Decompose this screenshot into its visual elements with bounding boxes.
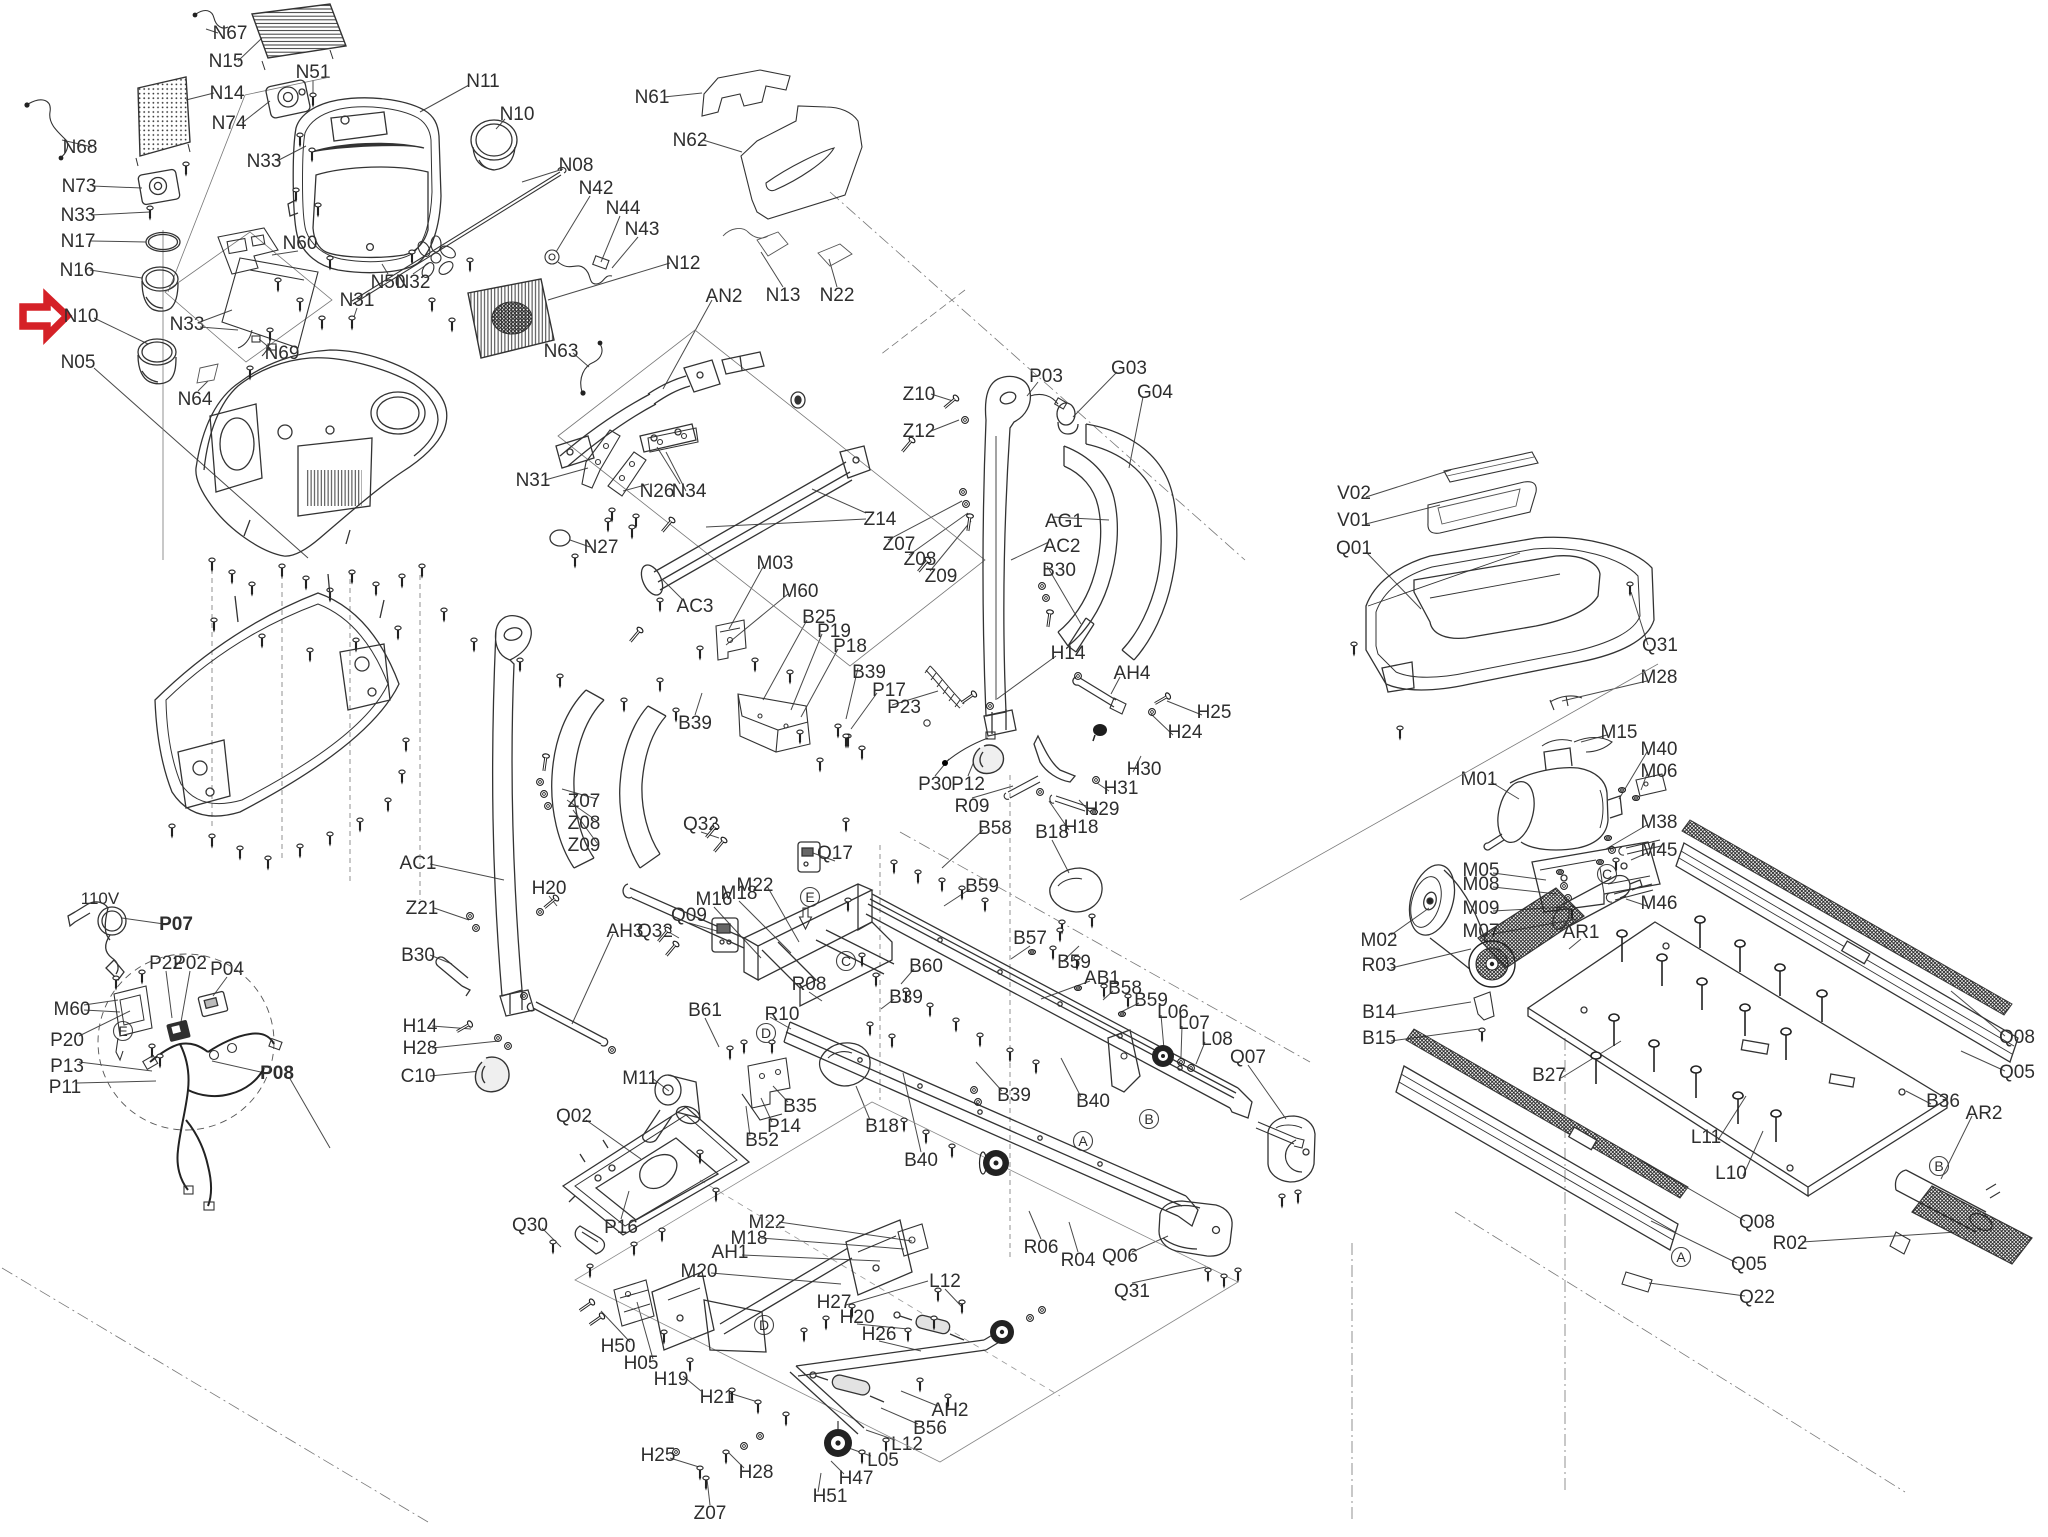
svg-text:Q30: Q30: [512, 1215, 548, 1236]
svg-text:Q05: Q05: [1731, 1254, 1767, 1275]
svg-text:B40: B40: [904, 1150, 938, 1171]
svg-text:AG1: AG1: [1045, 511, 1083, 532]
svg-text:R09: R09: [955, 796, 990, 817]
svg-text:B35: B35: [783, 1096, 817, 1117]
svg-text:B14: B14: [1362, 1002, 1396, 1023]
svg-text:B57: B57: [1013, 928, 1047, 949]
svg-text:AH4: AH4: [1114, 663, 1151, 684]
svg-text:AR2: AR2: [1966, 1103, 2003, 1124]
svg-text:B60: B60: [909, 956, 943, 977]
svg-text:N10: N10: [64, 306, 99, 327]
svg-text:Z12: Z12: [903, 421, 936, 442]
svg-text:N67: N67: [213, 23, 248, 44]
svg-text:H26: H26: [862, 1324, 897, 1345]
svg-text:P11: P11: [49, 1077, 81, 1098]
svg-text:N63: N63: [544, 341, 579, 362]
svg-text:N27: N27: [584, 537, 619, 558]
svg-text:B58: B58: [978, 818, 1012, 839]
svg-text:P02: P02: [173, 953, 207, 974]
svg-text:Z21: Z21: [406, 898, 439, 919]
svg-text:Z07: Z07: [694, 1503, 727, 1524]
svg-text:N61: N61: [635, 87, 670, 108]
svg-text:H51: H51: [813, 1486, 848, 1507]
svg-text:Q17: Q17: [817, 843, 853, 864]
svg-text:H30: H30: [1127, 759, 1162, 780]
svg-text:Q31: Q31: [1642, 635, 1678, 656]
svg-text:E: E: [805, 889, 814, 905]
svg-text:N31: N31: [340, 290, 375, 311]
svg-text:V01: V01: [1337, 510, 1371, 531]
svg-text:H28: H28: [739, 1462, 774, 1483]
svg-text:Z10: Z10: [903, 384, 936, 405]
svg-text:N22: N22: [820, 285, 855, 306]
svg-text:Q05: Q05: [1999, 1062, 2035, 1083]
svg-text:N74: N74: [212, 113, 247, 134]
svg-text:V02: V02: [1337, 483, 1371, 504]
svg-text:H24: H24: [1168, 722, 1203, 743]
svg-text:N31: N31: [516, 470, 551, 491]
svg-text:R06: R06: [1024, 1237, 1059, 1258]
svg-text:Z07: Z07: [568, 791, 601, 812]
svg-text:P07: P07: [159, 914, 193, 935]
svg-text:Z08: Z08: [568, 813, 601, 834]
svg-text:H20: H20: [532, 878, 567, 899]
svg-text:N11: N11: [466, 71, 499, 92]
svg-text:H14: H14: [403, 1016, 438, 1037]
svg-text:P13: P13: [50, 1056, 84, 1077]
svg-text:H19: H19: [654, 1369, 689, 1390]
svg-text:B30: B30: [1042, 560, 1076, 581]
svg-text:G03: G03: [1111, 358, 1147, 379]
svg-text:N34: N34: [672, 481, 707, 502]
svg-text:C10: C10: [401, 1066, 436, 1087]
svg-text:B39: B39: [997, 1085, 1031, 1106]
svg-text:H25: H25: [641, 1445, 676, 1466]
svg-text:N05: N05: [61, 352, 96, 373]
svg-text:N64: N64: [178, 389, 213, 410]
svg-text:N73: N73: [62, 176, 97, 197]
svg-text:P18: P18: [833, 636, 867, 657]
svg-text:Q06: Q06: [1102, 1246, 1138, 1267]
svg-text:AH1: AH1: [712, 1242, 749, 1263]
svg-text:G04: G04: [1137, 382, 1173, 403]
svg-text:B15: B15: [1362, 1028, 1396, 1049]
svg-text:R04: R04: [1061, 1250, 1096, 1271]
svg-text:Q31: Q31: [1114, 1281, 1150, 1302]
svg-text:AC2: AC2: [1044, 536, 1081, 557]
svg-text:L08: L08: [1201, 1029, 1233, 1050]
svg-text:M08: M08: [1463, 874, 1500, 895]
svg-text:N62: N62: [673, 130, 708, 151]
svg-text:AH3: AH3: [607, 921, 644, 942]
svg-text:M18: M18: [721, 883, 758, 904]
svg-text:N43: N43: [625, 219, 660, 240]
svg-text:B61: B61: [688, 1000, 722, 1021]
svg-text:B: B: [1144, 1111, 1153, 1127]
svg-text:M38: M38: [1641, 812, 1678, 833]
svg-text:L12: L12: [929, 1271, 961, 1292]
svg-text:H25: H25: [1197, 702, 1232, 723]
svg-text:B27: B27: [1532, 1065, 1566, 1086]
svg-text:Q07: Q07: [1230, 1047, 1266, 1068]
svg-text:P30: P30: [918, 774, 952, 795]
svg-text:M60: M60: [782, 581, 819, 602]
svg-text:B18: B18: [1035, 822, 1069, 843]
svg-text:N33: N33: [247, 151, 282, 172]
svg-text:AC1: AC1: [400, 853, 437, 874]
svg-text:R02: R02: [1773, 1233, 1808, 1254]
svg-text:H31: H31: [1104, 778, 1139, 799]
svg-text:N17: N17: [61, 231, 96, 252]
svg-text:B40: B40: [1076, 1091, 1110, 1112]
svg-text:A: A: [1676, 1249, 1686, 1265]
svg-text:Q01: Q01: [1336, 538, 1372, 559]
svg-text:Q22: Q22: [1739, 1287, 1775, 1308]
svg-text:P20: P20: [50, 1030, 84, 1051]
svg-text:Z09: Z09: [925, 566, 958, 587]
svg-text:B30: B30: [401, 945, 435, 966]
svg-text:N14: N14: [210, 83, 245, 104]
svg-text:N33: N33: [61, 205, 96, 226]
svg-text:M28: M28: [1641, 667, 1678, 688]
svg-text:Q02: Q02: [556, 1106, 592, 1127]
svg-text:Z14: Z14: [864, 509, 897, 530]
svg-text:N12: N12: [666, 253, 701, 274]
svg-text:N15: N15: [209, 51, 244, 72]
svg-text:R10: R10: [765, 1004, 800, 1025]
svg-text:M60: M60: [54, 999, 91, 1020]
svg-text:M11: M11: [622, 1068, 658, 1089]
svg-text:AN2: AN2: [706, 286, 743, 307]
svg-text:H28: H28: [403, 1038, 438, 1059]
svg-text:N13: N13: [766, 285, 801, 306]
svg-text:B39: B39: [678, 713, 712, 734]
svg-text:N26: N26: [640, 481, 675, 502]
svg-text:AC3: AC3: [677, 596, 714, 617]
svg-text:M03: M03: [757, 553, 794, 574]
svg-text:N44: N44: [606, 198, 641, 219]
svg-text:R03: R03: [1362, 955, 1397, 976]
svg-text:Q08: Q08: [1739, 1212, 1775, 1233]
svg-text:D: D: [761, 1025, 771, 1041]
svg-text:N08: N08: [559, 155, 594, 176]
svg-text:A: A: [1078, 1133, 1088, 1149]
svg-text:M46: M46: [1641, 893, 1678, 914]
svg-text:N42: N42: [579, 178, 614, 199]
svg-text:B59: B59: [965, 876, 999, 897]
svg-text:B18: B18: [865, 1116, 899, 1137]
svg-text:M02: M02: [1361, 930, 1398, 951]
svg-text:P16: P16: [604, 1217, 638, 1238]
svg-text:P12: P12: [951, 774, 985, 795]
svg-text:P04: P04: [210, 959, 244, 980]
svg-text:L10: L10: [1715, 1163, 1747, 1184]
svg-text:B52: B52: [745, 1130, 779, 1151]
svg-text:M40: M40: [1641, 739, 1678, 760]
svg-text:M15: M15: [1601, 722, 1638, 743]
svg-text:M06: M06: [1641, 761, 1678, 782]
svg-text:P23: P23: [887, 697, 921, 718]
svg-text:N32: N32: [396, 272, 431, 293]
svg-text:N16: N16: [60, 260, 95, 281]
svg-text:N33: N33: [170, 314, 205, 335]
svg-text:B: B: [1934, 1158, 1943, 1174]
